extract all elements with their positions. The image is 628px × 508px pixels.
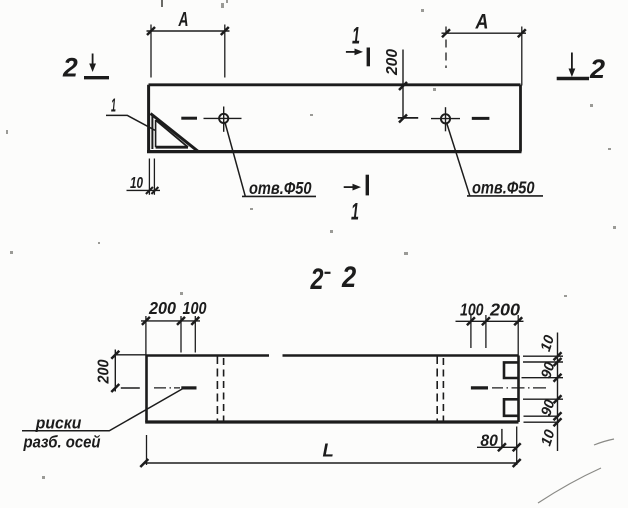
svg-text:отв.Ф50: отв.Ф50	[249, 178, 312, 198]
svg-text:200: 200	[96, 359, 113, 384]
svg-text:100: 100	[460, 300, 484, 320]
svg-text:1: 1	[351, 199, 359, 226]
svg-text:2: 2	[589, 54, 605, 84]
svg-text:200: 200	[384, 49, 401, 76]
svg-text:100: 100	[183, 298, 207, 318]
svg-text:1: 1	[352, 23, 360, 50]
svg-text:2: 2	[310, 262, 324, 295]
svg-text:A: A	[475, 11, 489, 34]
svg-text:разб. осей: разб. осей	[23, 433, 101, 451]
svg-text:80: 80	[480, 431, 498, 450]
svg-text:10: 10	[130, 175, 143, 192]
svg-text:1: 1	[111, 96, 116, 116]
svg-text:отв.Ф50: отв.Ф50	[472, 178, 535, 198]
svg-text:200: 200	[489, 300, 520, 320]
svg-text:2: 2	[341, 260, 357, 293]
svg-text:L: L	[323, 440, 334, 461]
svg-text:200: 200	[148, 298, 176, 318]
svg-text:2: 2	[62, 53, 78, 83]
svg-text:риски: риски	[35, 413, 82, 432]
svg-text:A: A	[178, 9, 189, 31]
